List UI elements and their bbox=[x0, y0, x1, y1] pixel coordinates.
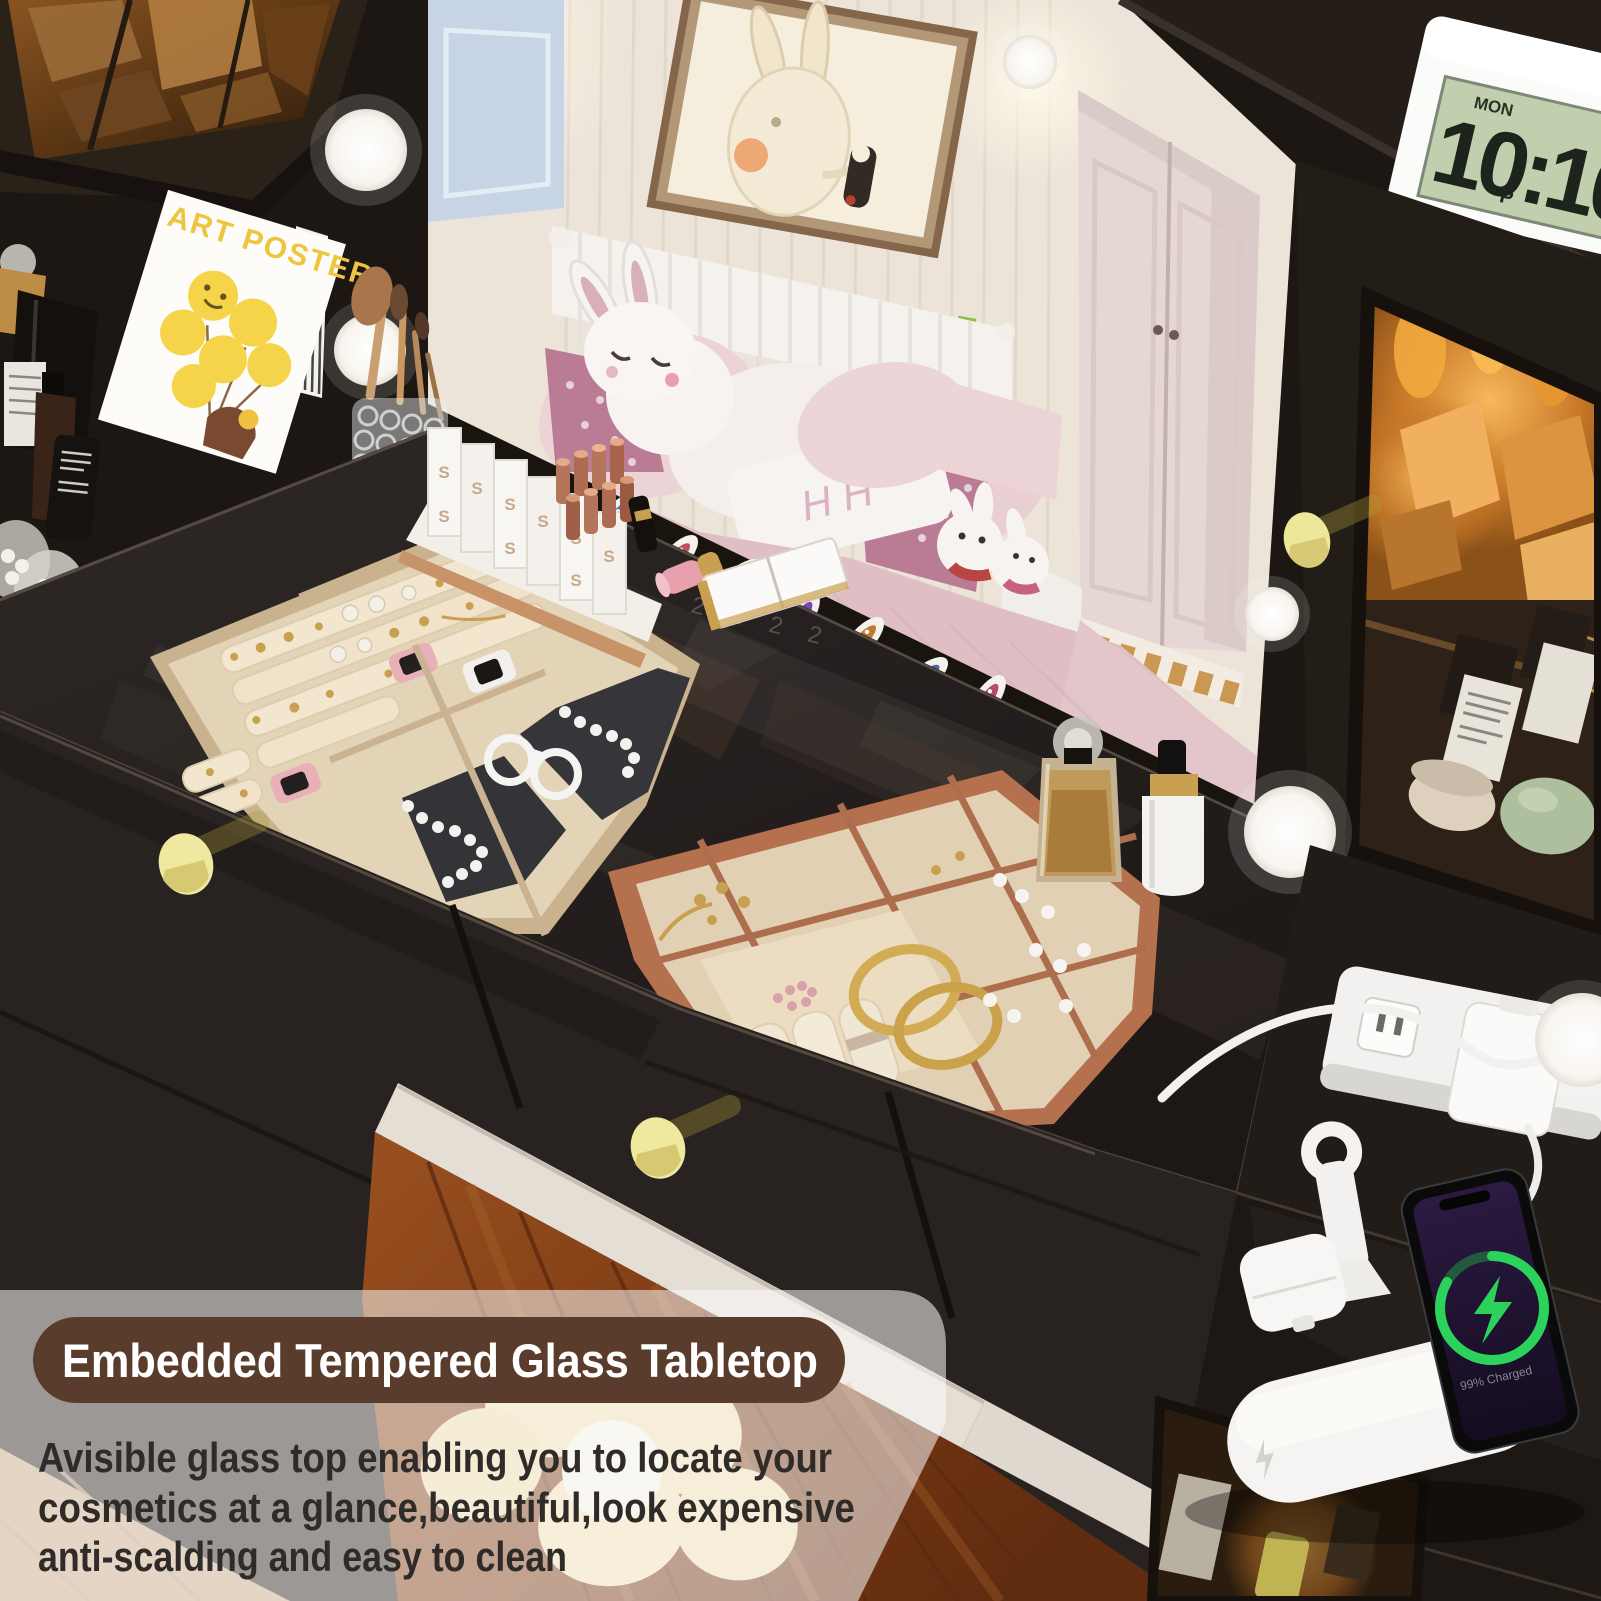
svg-text:S: S bbox=[603, 547, 614, 566]
svg-text:S: S bbox=[504, 495, 515, 514]
svg-text:anti-scalding and easy to clea: anti-scalding and easy to clean bbox=[38, 1533, 567, 1580]
svg-text:Embedded Tempered Glass Tablet: Embedded Tempered Glass Tabletop bbox=[62, 1334, 818, 1387]
svg-text:S: S bbox=[570, 571, 581, 590]
svg-text:cosmetics at a glance,beautifu: cosmetics at a glance,beautiful,look exp… bbox=[38, 1484, 855, 1531]
svg-text:S: S bbox=[504, 539, 515, 558]
svg-text:S: S bbox=[438, 463, 449, 482]
svg-text:S: S bbox=[438, 507, 449, 526]
svg-text:Avisible glass top enabling yo: Avisible glass top enabling you to locat… bbox=[38, 1434, 832, 1481]
svg-text:S: S bbox=[537, 512, 548, 531]
svg-text:S: S bbox=[471, 479, 482, 498]
